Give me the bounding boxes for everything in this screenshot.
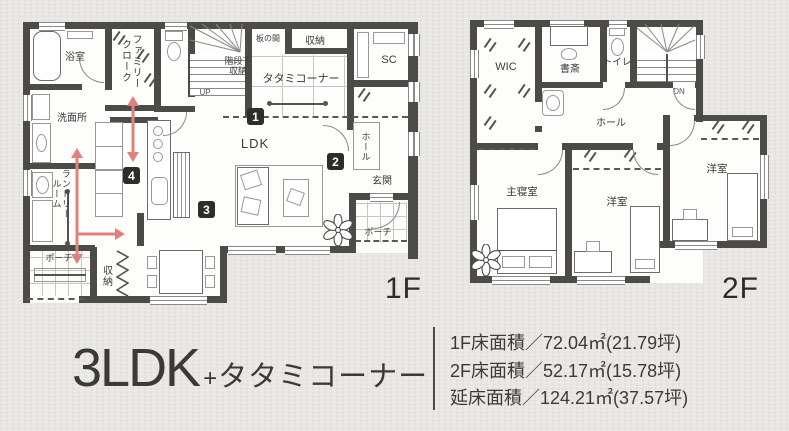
sc-shelf xyxy=(373,32,405,44)
pillow xyxy=(529,256,552,268)
desk xyxy=(574,251,612,273)
porch-edge xyxy=(355,240,407,242)
window xyxy=(408,34,420,56)
under-stairs-line2: 収納 xyxy=(229,66,247,76)
toilet-sink xyxy=(609,28,625,36)
wall xyxy=(630,20,637,88)
room-label-itanoma: 板の間 xyxy=(254,35,282,44)
room-label-porch-left: ポーチ xyxy=(37,254,81,264)
window xyxy=(470,50,479,78)
closet-line xyxy=(479,148,535,150)
room-label-master-bedroom: 主寝室 xyxy=(497,187,547,199)
wall xyxy=(663,121,670,248)
summary-divider xyxy=(433,327,435,410)
kitchen-sink xyxy=(151,177,168,205)
pillow xyxy=(502,256,525,268)
sc-shelf xyxy=(357,32,369,78)
wall xyxy=(137,213,144,246)
floor2-label: 2F xyxy=(722,272,759,306)
desk-chair xyxy=(586,241,600,252)
desk-chair xyxy=(683,209,697,220)
room-label-ldk: LDK xyxy=(234,137,276,151)
room-label-laundry: ランドリールーム xyxy=(51,168,70,220)
laundry-counter xyxy=(32,200,53,242)
door-gap xyxy=(633,143,657,150)
point-badge-4: 4 xyxy=(123,167,140,184)
wall xyxy=(220,246,227,303)
room-label-sc: SC xyxy=(375,54,403,66)
window xyxy=(675,241,717,250)
tatami-pole xyxy=(270,103,326,105)
up-label: UP xyxy=(193,89,217,98)
stairs-fan xyxy=(190,24,245,54)
room-label-storage-top: 収納 xyxy=(300,36,330,47)
washroom-cabinet xyxy=(32,94,50,120)
room-label-tatami: タタミコーナー xyxy=(253,73,349,85)
room-label-hall-2f: ホール xyxy=(586,118,636,129)
wall xyxy=(285,22,292,50)
toilet-tank xyxy=(165,31,183,41)
wall xyxy=(600,20,607,88)
window xyxy=(370,193,393,202)
stove-burner xyxy=(153,139,163,149)
room-label-porch-right: ポーチ xyxy=(356,228,400,238)
wall xyxy=(285,48,347,54)
wall xyxy=(154,22,161,112)
tatami-corner-floor xyxy=(252,55,347,116)
window xyxy=(760,155,769,199)
pole-end xyxy=(323,101,328,106)
wash-basin-bowl xyxy=(36,134,47,152)
stove-burner xyxy=(153,126,163,136)
pillow xyxy=(635,259,655,269)
kitchen-bar-counter xyxy=(173,152,190,218)
window xyxy=(150,296,207,305)
door-gap xyxy=(538,143,562,150)
plan-suffix: タタミコーナー xyxy=(218,353,428,395)
stairs-fan xyxy=(637,24,696,54)
stairs-rail xyxy=(666,54,668,82)
room-label-bedroom-center: 洋室 xyxy=(592,197,642,209)
washer-drum xyxy=(36,176,49,194)
point-badge-3: 3 xyxy=(198,201,215,218)
dining-chair xyxy=(147,256,157,269)
under-stairs-storage-label: 階段下 収納 xyxy=(221,57,255,77)
plan-title: 3LDK + タタミコーナー xyxy=(72,337,428,399)
window xyxy=(285,246,330,255)
room-label-bedroom-right: 洋室 xyxy=(692,164,742,176)
floor-plan-2f: DN xyxy=(470,20,775,283)
porch-bench-rail xyxy=(34,274,86,276)
flower-icon xyxy=(470,244,502,276)
toilet-bowl xyxy=(611,38,624,56)
traffic-flow-arrow xyxy=(125,96,141,162)
plan-plus: + xyxy=(203,365,217,393)
door-gap xyxy=(535,102,542,126)
plan-type: 3LDK xyxy=(72,337,199,399)
stove-burner xyxy=(153,152,163,162)
window xyxy=(696,35,705,59)
floorplan-page: { "colors": { "background": "#e9e7e3", "… xyxy=(0,0,789,431)
dining-chair xyxy=(147,275,157,288)
point-badge-1: 1 xyxy=(247,108,264,125)
wall xyxy=(23,22,30,303)
room-label-toilet-2f: トイレ xyxy=(597,58,637,68)
area-line-total: 延床面積／124.21㎡(37.57坪) xyxy=(450,385,688,413)
hall-basin-bowl xyxy=(546,95,560,111)
porch-edge xyxy=(27,298,85,300)
window xyxy=(39,22,65,31)
room-label-washroom: 洗面所 xyxy=(49,113,95,124)
window xyxy=(577,276,625,285)
window xyxy=(23,95,32,121)
area-summary: 1F床面積／72.04㎡(21.79坪) 2F床面積／52.17㎡(15.78坪… xyxy=(450,330,688,413)
study-chair xyxy=(561,48,577,60)
pillow xyxy=(732,227,753,237)
floor-plan-1f: UP 階段下 収納 xyxy=(23,22,418,303)
dining-table xyxy=(159,250,203,294)
dining-chair xyxy=(205,275,215,288)
window xyxy=(484,20,514,29)
point-badge-2: 2 xyxy=(327,153,344,170)
room-label-entrance: 玄関 xyxy=(360,176,404,187)
desk xyxy=(672,219,708,241)
area-line-2f: 2F床面積／52.17㎡(15.78坪) xyxy=(450,358,688,386)
pole-end xyxy=(267,101,272,106)
window xyxy=(492,276,550,285)
area-line-1f: 1F床面積／72.04㎡(21.79坪) xyxy=(450,330,688,358)
wall xyxy=(105,22,112,90)
room-label-study: 書斎 xyxy=(550,64,590,75)
bath-counter xyxy=(67,31,93,39)
wall xyxy=(30,84,82,90)
window xyxy=(408,82,420,102)
window xyxy=(23,170,32,196)
closet-line xyxy=(701,138,759,140)
window xyxy=(228,246,276,255)
wall xyxy=(347,80,408,87)
blanket-line xyxy=(498,250,556,251)
toilet-bowl xyxy=(167,42,181,61)
room-label-family-cloak: ファミリークローク xyxy=(119,32,140,90)
study-desk xyxy=(550,26,588,46)
window xyxy=(165,22,187,31)
window xyxy=(470,185,479,220)
window xyxy=(408,132,420,156)
flower-icon xyxy=(322,214,354,246)
room-label-storage-bottom: 収納 xyxy=(100,262,111,290)
wall xyxy=(565,143,572,283)
dining-chair xyxy=(205,256,215,269)
room-label-hall-1f: ホール xyxy=(360,129,369,165)
room-label-wic: WIC xyxy=(486,61,526,73)
traffic-flow-arrow xyxy=(69,148,127,264)
sofa-cushion xyxy=(241,196,262,215)
room-label-bath: 浴室 xyxy=(53,52,97,63)
floor1-label: 1F xyxy=(385,272,422,306)
under-stairs-line1: 階段下 xyxy=(224,56,251,66)
